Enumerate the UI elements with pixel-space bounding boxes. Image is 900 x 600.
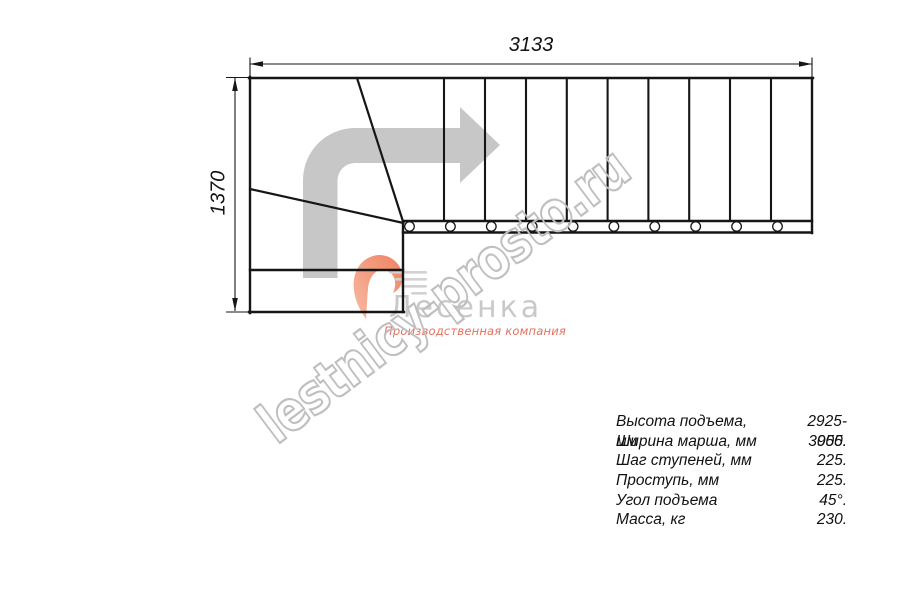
spec-row: Шаг ступеней, мм 225. — [616, 451, 847, 471]
dimension-width-label: 3133 — [509, 34, 554, 57]
spec-row: Высота подъема, мм 2925-3055. — [616, 412, 847, 432]
spec-label: Высота подъема, мм — [616, 412, 770, 432]
technical-drawing-page: Лесенка Производственная компания — [0, 0, 900, 600]
spec-label: Проступь, мм — [616, 471, 719, 491]
dimension-height-label: 1370 — [208, 171, 231, 216]
spec-row: Проступь, мм 225. — [616, 471, 847, 491]
spec-value: 230. — [817, 510, 847, 530]
spec-table: Высота подъема, мм 2925-3055. Ширина мар… — [616, 412, 847, 530]
spec-label: Ширина марша, мм — [616, 432, 757, 452]
spec-value: 2925-3055. — [770, 412, 847, 432]
spec-value: 900. — [817, 432, 847, 452]
spec-value: 45°. — [819, 491, 847, 511]
spec-label: Угол подъема — [616, 491, 717, 511]
dimension-top — [250, 58, 812, 78]
spec-value: 225. — [817, 471, 847, 491]
spec-value: 225. — [817, 451, 847, 471]
spec-label: Шаг ступеней, мм — [616, 451, 752, 471]
spec-row: Масса, кг 230. — [616, 510, 847, 530]
spec-row: Угол подъема 45°. — [616, 491, 847, 511]
spec-label: Масса, кг — [616, 510, 685, 530]
